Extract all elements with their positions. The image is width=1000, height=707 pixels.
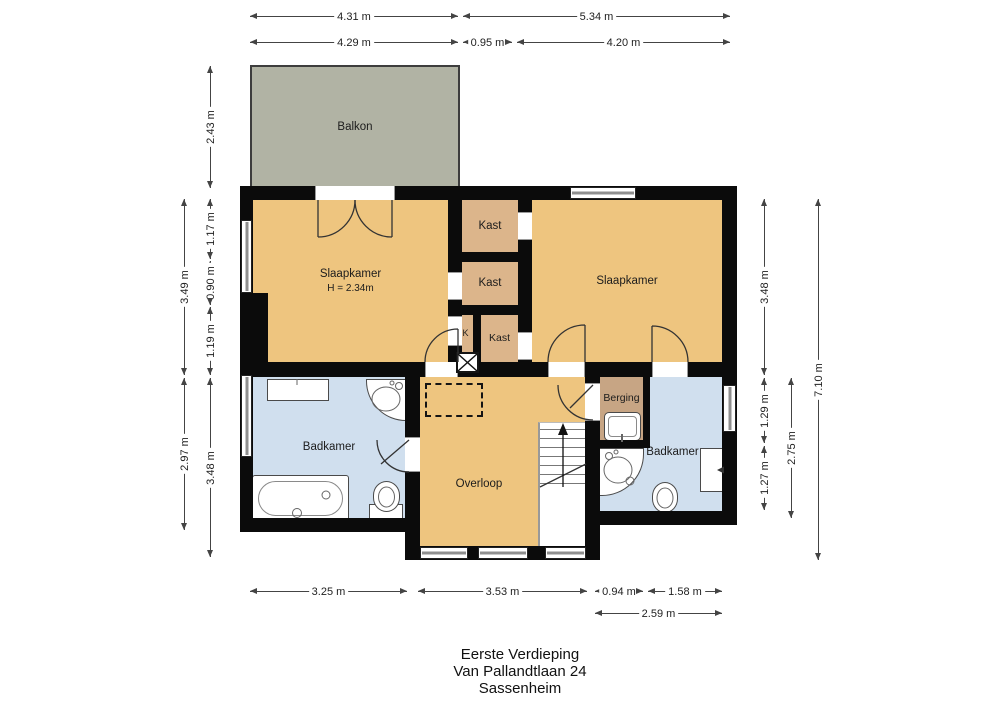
dimension-right-2: 1.29 m [764,378,765,443]
door-opening [405,437,420,472]
dimension-right-1: 3.48 m [764,199,765,375]
staircase [538,422,586,546]
dimension-label: 2.97 m [179,434,191,474]
dimension-top-3: 4.29 m [250,42,458,43]
dimension-bottom-5: 2.59 m [595,613,722,614]
wall [600,511,737,525]
wall [585,511,600,560]
dimension-label: 5.34 m [577,11,617,23]
dimension-label: 3.53 m [483,586,523,598]
floorplan-canvas: Balkon Slaapkamer H = 2.34m Kast Kast K … [0,0,1000,707]
dimension-label: 0.90 m [205,263,217,303]
bathtub-basin [258,481,343,516]
wall [448,305,532,315]
berging-sink [604,412,641,441]
berging-sink-basin [608,416,637,437]
room-label-kast-bottom: Kast [489,332,510,345]
door-opening [585,383,600,421]
room-label-slaapkamer-left: Slaapkamer [320,267,381,281]
dimension-left-1: 2.43 m [210,66,211,188]
dimension-label: 1.29 m [759,391,771,431]
room-overloop: Overloop [420,422,538,546]
room-label-badkamer-right: Badkamer [646,445,698,459]
door-opening [548,362,585,377]
dimension-top-4: 0.95 m [463,42,512,43]
dimension-label: 4.29 m [334,37,374,49]
window [420,547,468,559]
room-label-kast-top: Kast [478,219,501,233]
room-balkon: Balkon [250,65,460,190]
dimension-label: 2.43 m [205,107,217,147]
room-kast-top: Kast [462,200,518,252]
dimension-bottom-4: 1.58 m [648,591,722,592]
dimension-label: 1.58 m [665,586,705,598]
room-height-label: H = 2.34m [327,283,373,296]
room-label-kast-mid: Kast [478,276,501,290]
dimension-bottom-2: 3.53 m [418,591,587,592]
dimension-left-6: 2.97 m [184,378,185,530]
balcony-door-opening [315,186,395,200]
room-kast-bottom: Kast [481,315,518,362]
wall [593,440,650,448]
window [241,220,252,293]
door-opening [652,362,688,377]
wall [240,518,418,532]
closet-door-opening [518,212,532,240]
closet-door-opening [518,332,532,360]
city-line: Sassenheim [370,680,670,697]
room-kast-mid: Kast [462,262,518,305]
dimension-right-3: 1.27 m [764,446,765,510]
window [570,187,636,199]
room-label-badkamer-left: Badkamer [303,440,355,454]
dimension-label: 0.95 m [468,37,508,49]
dimension-left-3: 1.17 m [210,199,211,259]
wall [643,377,650,448]
wall [722,186,737,525]
window [478,547,528,559]
dimension-label: 2.59 m [639,608,679,620]
dimension-label: 3.25 m [309,586,349,598]
dimension-label: 1.19 m [205,321,217,361]
window [723,385,736,432]
room-label-overloop: Overloop [456,477,503,491]
dimension-right-4: 2.75 m [791,378,792,518]
dimension-label: 3.48 m [759,267,771,307]
dimension-label: 2.75 m [786,428,798,468]
dimension-bottom-1: 3.25 m [250,591,407,592]
dimension-left-7: 3.48 m [210,378,211,557]
dimension-left-4: 0.90 m [210,261,211,305]
floor-title: Eerste Verdieping [370,646,670,663]
window [545,547,586,559]
bathroom-cabinet [267,379,329,401]
shaft-door-opening [448,316,462,346]
attic-hatch-dashed-outline [425,383,483,417]
title-block: Eerste Verdieping Van Pallandtlaan 24 Sa… [370,646,670,697]
dimension-bottom-3: 0.94 m [595,591,643,592]
dimension-right-5: 7.10 m [818,199,819,560]
window [241,375,252,457]
room-label-balkon: Balkon [337,120,372,134]
wall [448,252,532,262]
dimension-label: 1.27 m [759,458,771,498]
address-line: Van Pallandtlaan 24 [370,663,670,680]
dimension-label: 0.94 m [599,586,639,598]
dimension-label: 3.49 m [179,267,191,307]
wall-chimney [240,293,268,365]
shaft-cross-box [456,352,479,373]
bathtub [252,475,349,522]
room-label-berging: Berging [603,392,639,405]
dimension-label: 3.48 m [205,448,217,488]
closet-door-opening [448,272,462,300]
dimension-top-1: 4.31 m [250,16,458,17]
room-label-slaapkamer-right: Slaapkamer [596,274,657,288]
dimension-label: 7.10 m [813,360,825,400]
dimension-label: 4.20 m [604,37,644,49]
toilet-right-bowl [652,482,678,513]
door-opening [425,362,458,377]
dimension-left-5: 1.19 m [210,307,211,375]
dimension-top-2: 5.34 m [463,16,730,17]
room-slaapkamer-right: Slaapkamer [532,200,722,362]
room-slaapkamer-left: Slaapkamer H = 2.34m [253,200,448,362]
toilet-left-bowl [373,481,400,512]
dimension-left-2: 3.49 m [184,199,185,375]
dimension-label: 4.31 m [334,11,374,23]
dimension-label: 1.17 m [205,209,217,249]
dimension-top-5: 4.20 m [517,42,730,43]
room-label-k-shaft: K [462,328,468,339]
